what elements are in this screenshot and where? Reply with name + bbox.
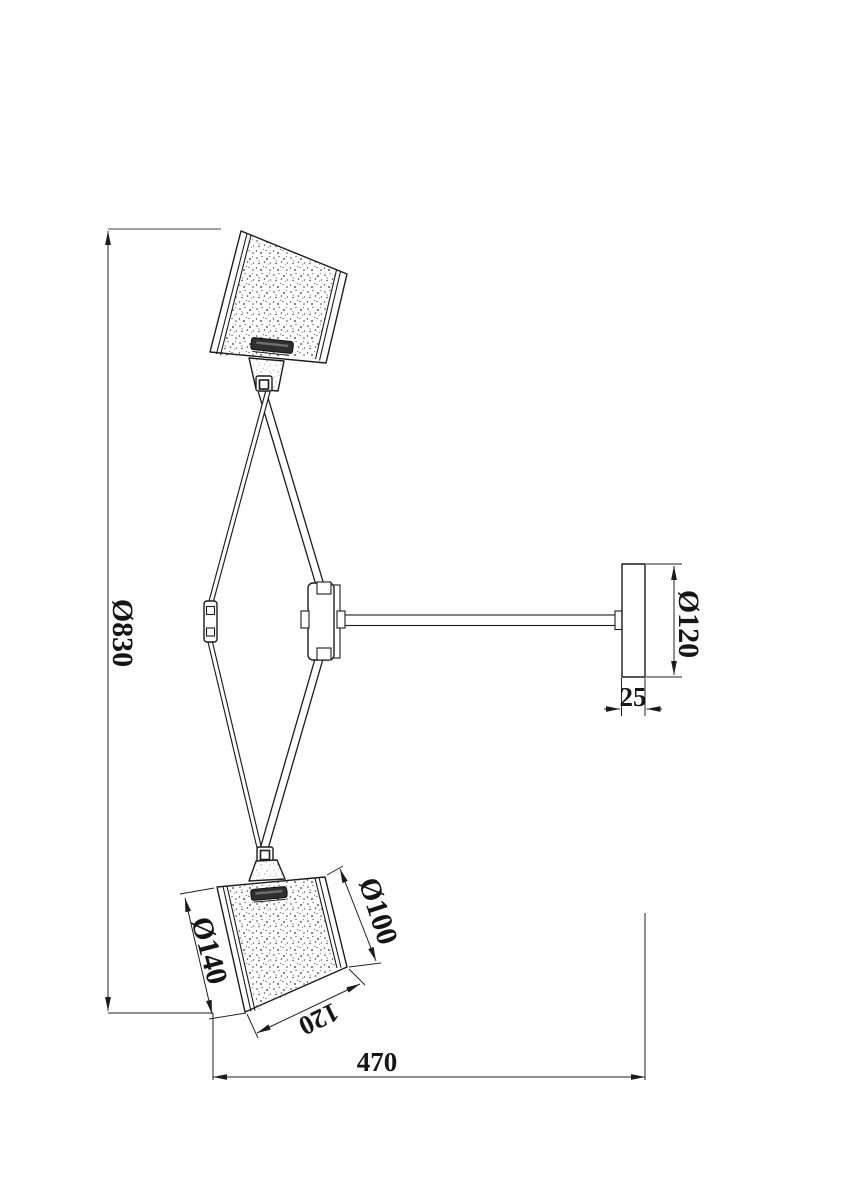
- dim-label-shade-height: 120: [294, 997, 344, 1042]
- upper-right-arm-fill: [262, 391, 320, 585]
- hub-left-nub: [301, 611, 309, 628]
- rod-collar: [615, 611, 622, 630]
- wall-plate: [622, 564, 645, 677]
- dimension-canopy-diameter: Ø120: [646, 564, 705, 677]
- top-shade: [210, 231, 347, 391]
- bottom-shade: [217, 860, 347, 1012]
- dimension-canopy-depth: 25: [604, 678, 662, 716]
- dim-label-shade-top-diameter: Ø100: [352, 873, 405, 948]
- technical-drawing-page: Ø830 Ø120 25 Ø140 Ø100 120: [0, 0, 848, 1200]
- left-pivot-joint: [204, 601, 217, 642]
- upper-left-arm-fill: [211, 391, 268, 602]
- dim-label-canopy-depth: 25: [620, 682, 647, 712]
- lower-right-arm-fill: [264, 659, 319, 849]
- lower-left-arm-fill: [210, 641, 260, 851]
- hub-top-tab: [317, 582, 331, 594]
- wall-canopy: [615, 564, 645, 677]
- dim-label-canopy-diameter: Ø120: [672, 590, 705, 658]
- dim-label-overall-height: Ø830: [106, 599, 139, 667]
- dim-label-wall-projection: 470: [357, 1047, 398, 1077]
- top-knuckle: [256, 376, 272, 391]
- horizontal-rod: [344, 615, 616, 626]
- hub-rod-tab: [337, 611, 345, 628]
- hub-bottom-tab: [317, 648, 331, 660]
- central-hub: [301, 582, 345, 660]
- wall-lamp-dimension-drawing: Ø830 Ø120 25 Ø140 Ø100 120: [0, 0, 848, 1200]
